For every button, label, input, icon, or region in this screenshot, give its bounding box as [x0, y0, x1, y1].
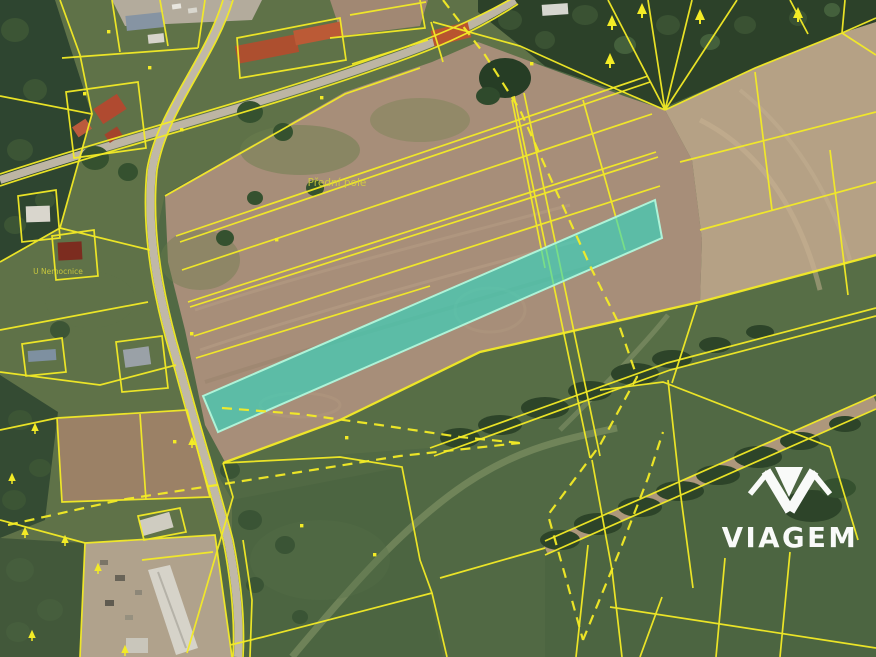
terrain-farmyard: [80, 535, 232, 657]
building-dark-roof: [58, 241, 83, 260]
building-blue-roof: [28, 349, 57, 362]
viagem-brand-text: VIAGEM: [722, 522, 859, 554]
building: [148, 33, 165, 44]
building: [542, 3, 569, 16]
map-canvas[interactable]: Přední pole U Nemocnice VIAGEM: [0, 0, 876, 657]
building: [123, 346, 151, 367]
field-name-label: Přední pole: [308, 177, 367, 189]
terrain-field-southwest: [57, 410, 210, 502]
street-name-label: U Nemocnice: [33, 267, 83, 276]
cadastral-map: Přední pole U Nemocnice VIAGEM: [0, 0, 876, 657]
farm-building: [126, 638, 148, 653]
building: [26, 206, 51, 223]
